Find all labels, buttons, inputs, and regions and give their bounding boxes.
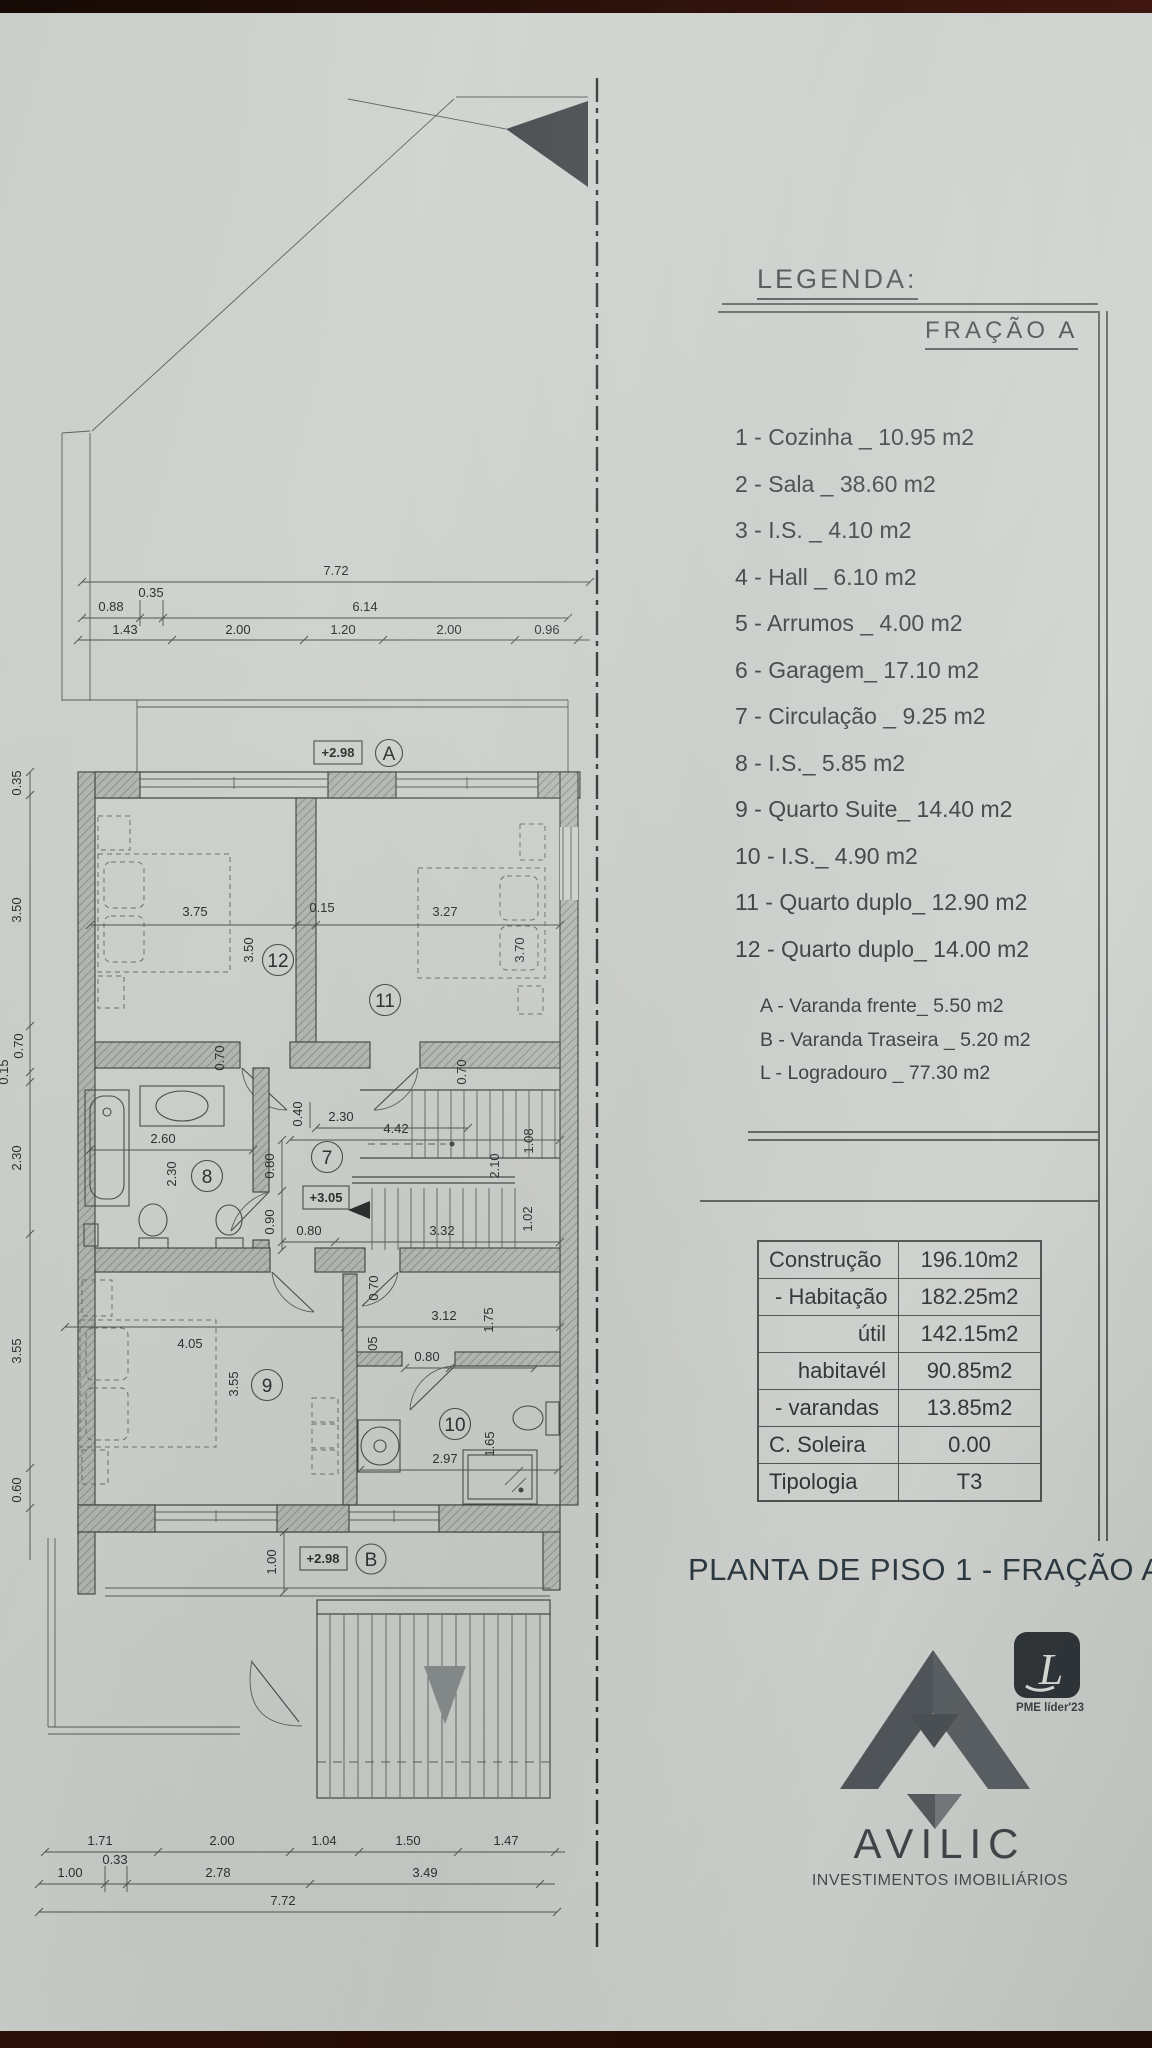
dim-label: 1.08 [521, 1128, 536, 1153]
dim-label: 1.04 [311, 1833, 336, 1848]
logo-tagline: INVESTIMENTOS IMOBILIÁRIOS [800, 1872, 1080, 1890]
dim-label: 2.00 [436, 622, 461, 637]
legend-items: 1 - Cozinha _ 10.95 m2 2 - Sala _ 38.60 … [735, 414, 1029, 972]
dim-label: 2.00 [209, 1833, 234, 1848]
dim-label: 0.80 [414, 1349, 439, 1364]
dim-label: 3.55 [226, 1371, 241, 1396]
table-row: Tipologia T3 [759, 1464, 1040, 1500]
legend-subitems: A - Varanda frente_ 5.50 m2 B - Varanda … [760, 990, 1031, 1091]
divider [748, 1139, 1098, 1141]
dim-label: 4.05 [177, 1336, 202, 1351]
balcony-a: +2.98 A [137, 700, 568, 772]
dim-label: 3.50 [9, 897, 24, 922]
dim-label: 1.75 [481, 1307, 496, 1332]
balcony-b-label: B [365, 1550, 378, 1571]
sink [361, 1427, 399, 1465]
table-row: - varandas 13.85m2 [759, 1390, 1040, 1427]
legend-item: 6 - Garagem_ 17.10 m2 [735, 647, 1029, 694]
area-label: - varandas [759, 1390, 899, 1426]
area-value: 142.15m2 [899, 1316, 1040, 1352]
room-number-9: 9 [262, 1376, 273, 1397]
divider [748, 1131, 1098, 1133]
corridor-7: 0.40 2.30 4.42 0.80 0.90 7 +3.05 0.80 3.… [262, 1101, 564, 1254]
legend-subitem: B - Varanda Traseira _ 5.20 m2 [760, 1024, 1031, 1058]
legend-subitem: A - Varanda frente_ 5.50 m2 [760, 990, 1031, 1024]
door-leaf [252, 1662, 299, 1722]
dim-label: 3.49 [412, 1865, 437, 1880]
dim-label: 0.60 [9, 1477, 24, 1502]
pme-badge-letter: L [1038, 1645, 1063, 1694]
bidet [216, 1205, 242, 1235]
dim-label: 3.55 [9, 1338, 24, 1363]
level-marker: +2.98 [307, 1551, 340, 1566]
dim-label: 1.02 [520, 1206, 535, 1231]
dim-label: 4.42 [383, 1121, 408, 1136]
dimensions-left: 0.35 3.50 0.70 0.15 2.30 3.55 0.60 [0, 768, 34, 1560]
divider [722, 303, 1098, 305]
suite-walls: 0.70 [95, 1248, 560, 1312]
pillow [104, 916, 144, 962]
legend-item: 9 - Quarto Suite_ 14.40 m2 [735, 786, 1029, 833]
legend-border [1106, 311, 1108, 1541]
room-number-10: 10 [444, 1415, 465, 1436]
table-row: C. Soleira 0.00 [759, 1427, 1040, 1464]
nightstand [98, 816, 130, 850]
dim-label: 0.88 [98, 599, 123, 614]
balcony-a-label: A [383, 744, 396, 765]
balcony-b: 1.00 +2.98 B [78, 1528, 560, 1596]
room-number-12: 12 [267, 951, 288, 972]
dim-label: 7.72 [323, 563, 348, 578]
dim-label: 0.35 [138, 585, 163, 600]
area-label: útil [759, 1316, 899, 1352]
legend-item: 10 - I.S._ 4.90 m2 [735, 833, 1029, 880]
legend-title: LEGENDA: [757, 264, 918, 300]
areas-table: Construção 196.10m2 - Habitação 182.25m2… [757, 1240, 1042, 1502]
north-triangle [424, 1666, 466, 1724]
level-marker: +3.05 [310, 1190, 343, 1205]
toilet [513, 1406, 543, 1430]
area-value: 90.85m2 [899, 1353, 1040, 1389]
room-number-11: 11 [375, 991, 395, 1012]
dim-label: 0.70 [11, 1033, 26, 1058]
dim-label: 1.43 [112, 622, 137, 637]
dim-label: 3.70 [512, 937, 527, 962]
dimensions-bottom: 1.71 2.00 1.04 1.50 1.47 1.00 0.33 2.78 … [35, 1833, 565, 1916]
cabinet [312, 1450, 338, 1474]
deck [317, 1600, 550, 1798]
dim-label: 0.15 [309, 900, 334, 915]
dimensions-rooms-top: 3.75 0.15 3.27 3.50 3.70 [86, 900, 564, 963]
dim-label: 0.15 [0, 1059, 11, 1084]
legend-item: 7 - Circulação _ 9.25 m2 [735, 693, 1029, 740]
stair-direction-arrow [348, 1201, 370, 1219]
dim-label: 0.70 [454, 1059, 469, 1084]
dim-label: 7.72 [270, 1893, 295, 1908]
pme-badge-label: PME líder'23 [1005, 1702, 1095, 1714]
pillow [104, 862, 144, 908]
legend-item: 2 - Sala _ 38.60 m2 [735, 461, 1029, 508]
room-12: 12 [98, 798, 316, 1042]
lot-boundary [62, 97, 588, 701]
legend-border [1098, 311, 1100, 1541]
area-value: 182.25m2 [899, 1279, 1040, 1315]
area-value: 13.85m2 [899, 1390, 1040, 1426]
dim-label: 2.10 [487, 1153, 502, 1178]
dim-label: 6.14 [352, 599, 377, 614]
dim-label: 0.90 [262, 1209, 277, 1234]
divider [700, 1200, 1098, 1202]
dim-label: 2.30 [328, 1109, 353, 1124]
room-11: 11 [370, 824, 546, 1016]
pillow [500, 876, 538, 920]
drawing-title: PLANTA DE PISO 1 - FRAÇÃO A [688, 1552, 1148, 1588]
dim-label: 0.80 [296, 1223, 321, 1238]
dim-label: 1.20 [330, 622, 355, 637]
dimensions-top: 7.72 0.88 0.35 6.14 1.43 2.00 1.20 2.00 … [74, 563, 594, 644]
area-label: - Habitação [759, 1279, 899, 1315]
table-row: Construção 196.10m2 [759, 1242, 1040, 1279]
table-row: - Habitação 182.25m2 [759, 1279, 1040, 1316]
dim-label: 2.00 [225, 622, 250, 637]
dim-label: 0.70 [366, 1275, 381, 1300]
avilic-logo [840, 1650, 1030, 1829]
legend-item: 5 - Arrumos _ 4.00 m2 [735, 600, 1029, 647]
level-marker: +2.98 [322, 745, 355, 760]
table-row: útil 142.15m2 [759, 1316, 1040, 1353]
dim-label: 2.60 [150, 1131, 175, 1146]
room-number-8: 8 [202, 1167, 213, 1188]
area-value: T3 [899, 1464, 1040, 1500]
area-label: Construção [759, 1242, 899, 1278]
area-value: 0.00 [899, 1427, 1040, 1463]
legend-item: 3 - I.S. _ 4.10 m2 [735, 507, 1029, 554]
shower [463, 1450, 537, 1504]
nightstand [520, 824, 545, 860]
legend-item: 8 - I.S._ 5.85 m2 [735, 740, 1029, 787]
nightstand [518, 986, 543, 1014]
background-edge-bottom [0, 2031, 1152, 2048]
dim-label: 2.97 [432, 1451, 457, 1466]
counter [358, 1420, 400, 1472]
legend-subitem: L - Logradouro _ 77.30 m2 [760, 1057, 1031, 1091]
area-label: C. Soleira [759, 1427, 899, 1463]
room-9: 3.55 9 [80, 1274, 357, 1505]
nightstand [98, 976, 124, 1008]
divider [718, 311, 1098, 313]
bathroom-8: 2.60 2.30 8 [84, 1068, 269, 1272]
bathroom-10: 10 2.97 1.65 [356, 1352, 562, 1504]
dim-label: 1.50 [395, 1833, 420, 1848]
dim-label: 0.35 [9, 770, 24, 795]
cabinet [312, 1398, 338, 1422]
table-row: habitavél 90.85m2 [759, 1353, 1040, 1390]
legend-item: 1 - Cozinha _ 10.95 m2 [735, 414, 1029, 461]
bottom-wall [78, 1505, 560, 1532]
dim-label: 2.78 [205, 1865, 230, 1880]
logo-name: AVILIC [842, 1820, 1037, 1868]
dim-label: 1.65 [482, 1431, 497, 1456]
legend-item: 12 - Quarto duplo_ 14.00 m2 [735, 926, 1029, 973]
deck-slats [330, 1615, 540, 1797]
dim-label: 3.27 [432, 904, 457, 919]
dim-label: 1.00 [264, 1549, 279, 1574]
dim-label: 2.30 [9, 1145, 24, 1170]
area-value: 196.10m2 [899, 1242, 1040, 1278]
toilet [139, 1204, 167, 1236]
bed [98, 854, 230, 972]
dim-label: 1.71 [87, 1833, 112, 1848]
legend-item: 11 - Quarto duplo_ 12.90 m2 [735, 879, 1029, 926]
pme-badge: L [1014, 1632, 1080, 1698]
dim-label: 0.33 [102, 1852, 127, 1867]
background-edge-top [0, 0, 1152, 13]
dim-label: 2.30 [164, 1161, 179, 1186]
dim-label: 3.32 [429, 1223, 454, 1238]
counter [140, 1086, 224, 1126]
dim-label: 0.96 [534, 622, 559, 637]
dim-label: 3.12 [431, 1308, 456, 1323]
dim-label: 1.00 [57, 1865, 82, 1880]
dim-label: 3.75 [182, 904, 207, 919]
area-label: habitavél [759, 1353, 899, 1389]
entry-flag [506, 101, 588, 187]
legend-item: 4 - Hall _ 6.10 m2 [735, 554, 1029, 601]
dim-label: 0.70 [212, 1045, 227, 1070]
dim-label: 0.80 [262, 1153, 277, 1178]
dim-label: 0.40 [290, 1101, 305, 1126]
dim-label: 1.47 [493, 1833, 518, 1848]
stair-treads [372, 1188, 515, 1250]
sink [156, 1091, 208, 1121]
dim-label: 3.50 [241, 937, 256, 962]
area-label: Tipologia [759, 1464, 899, 1500]
room-number-7: 7 [322, 1148, 333, 1169]
cabinet [312, 1424, 338, 1448]
fraction-title: FRAÇÃO A [925, 317, 1078, 350]
